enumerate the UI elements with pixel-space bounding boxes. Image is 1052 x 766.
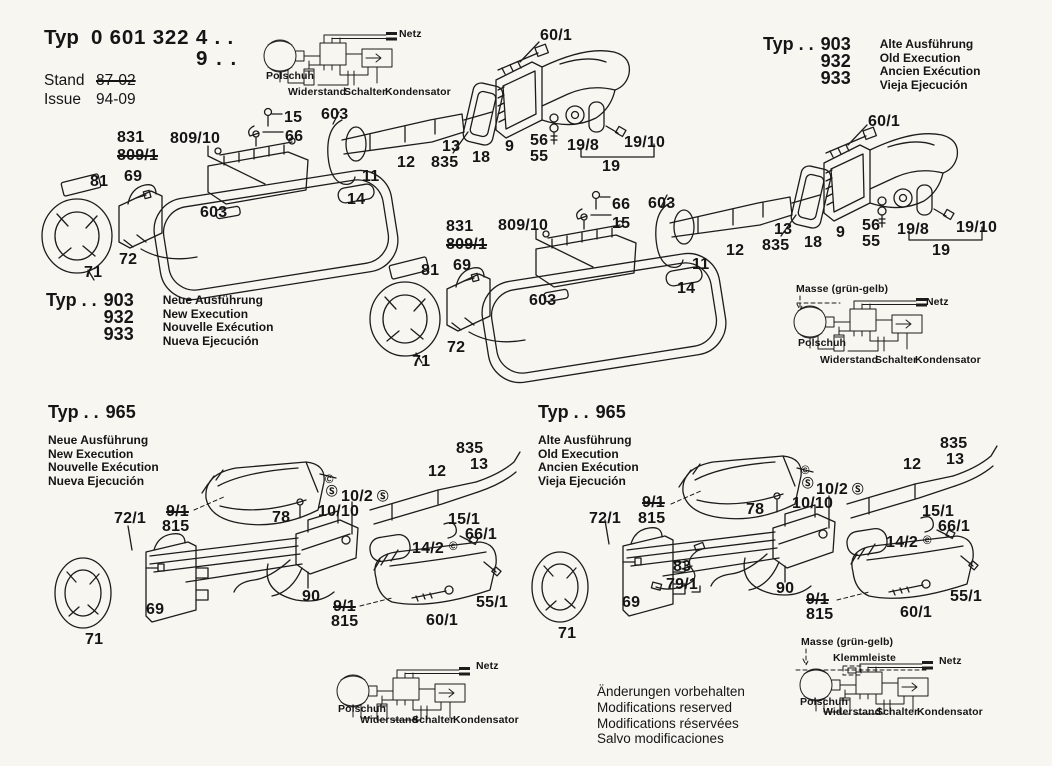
typ-number: 933 bbox=[46, 326, 134, 343]
typ-prefix: Typ . . bbox=[538, 402, 589, 422]
part-number-19-10: 19/10 bbox=[624, 135, 665, 151]
part-number-72: 72 bbox=[447, 340, 465, 356]
wiring-label-schalter: Schalter bbox=[876, 707, 918, 718]
footer-notes: Änderungen vorbehalten Modifications res… bbox=[597, 684, 745, 747]
type-block-965-new: Typ . .965 Neue Ausführung New Execution… bbox=[48, 404, 159, 488]
type-block-965-old: Typ . .965 Alte Ausführung Old Execution… bbox=[538, 404, 639, 488]
part-number-9: 9 bbox=[836, 225, 845, 241]
part-number-12: 12 bbox=[397, 155, 415, 171]
part-number-14: 14 bbox=[347, 192, 365, 208]
part-number-835: 835 bbox=[456, 441, 483, 457]
part-number-66-1: 66/1 bbox=[938, 519, 970, 535]
part-number-78: 78 bbox=[272, 510, 290, 526]
part-number-9-1: 9/1 bbox=[642, 495, 665, 511]
variant-lines: Neue Ausführung New Execution Nouvelle E… bbox=[48, 434, 159, 488]
part-number-815: 815 bbox=[162, 519, 189, 535]
variant-line: New Execution bbox=[48, 448, 159, 462]
part-number-13: 13 bbox=[946, 452, 964, 468]
circled-symbol-: Ⓢ bbox=[377, 492, 389, 504]
wiring-label-widerstand: Widerstand bbox=[820, 355, 878, 366]
part-number-69: 69 bbox=[124, 169, 142, 185]
variant-line: Vieja Ejecución bbox=[538, 475, 639, 489]
wiring-label-masse-grün-gelb: Masse (grün-gelb) bbox=[801, 637, 893, 648]
part-number-19-8: 19/8 bbox=[567, 138, 599, 154]
typ-number: 965 bbox=[106, 402, 136, 422]
variant-line: Neue Ausführung bbox=[48, 434, 159, 448]
typ-prefix: Typ . . bbox=[763, 34, 814, 54]
stand-label: Stand bbox=[44, 72, 96, 90]
variant-lines: Alte Ausführung Old Execution Ancien Exé… bbox=[538, 434, 639, 488]
part-number-66-1: 66/1 bbox=[465, 527, 497, 543]
wiring-label-polschuh: Polschuh bbox=[798, 338, 846, 349]
wiring-label-netz: Netz bbox=[926, 297, 949, 308]
part-number-72: 72 bbox=[119, 252, 137, 268]
part-number-18: 18 bbox=[804, 235, 822, 251]
typ-number: 933 bbox=[763, 70, 851, 87]
variant-line: Vieja Ejecución bbox=[880, 79, 981, 93]
stand-value: 87-02 bbox=[96, 72, 136, 89]
part-number-56: 56 bbox=[862, 218, 880, 234]
part-number-809-10: 809/10 bbox=[498, 218, 548, 234]
part-number-13: 13 bbox=[442, 139, 460, 155]
circled-symbol-: Ⓢ bbox=[852, 485, 864, 497]
part-number-14-2: 14/2 bbox=[412, 541, 444, 557]
typ-number-line2: 9 . . bbox=[196, 47, 238, 71]
part-number-69: 69 bbox=[146, 602, 164, 618]
part-number-71: 71 bbox=[558, 626, 576, 642]
part-number-831: 831 bbox=[117, 130, 144, 146]
variant-line: Alte Ausführung bbox=[538, 434, 639, 448]
stand-row: Stand87-02 bbox=[44, 72, 238, 90]
wiring-label-schalter: Schalter bbox=[875, 355, 917, 366]
wiring-label-polschuh: Polschuh bbox=[338, 704, 386, 715]
part-number-19-8: 19/8 bbox=[897, 222, 929, 238]
part-number-14: 14 bbox=[677, 281, 695, 297]
footer-note: Salvo modificaciones bbox=[597, 731, 745, 747]
part-number-55-1: 55/1 bbox=[950, 589, 982, 605]
part-number-835: 835 bbox=[762, 238, 789, 254]
part-number-71: 71 bbox=[85, 632, 103, 648]
part-number-72-1: 72/1 bbox=[114, 511, 146, 527]
part-number-60-1: 60/1 bbox=[900, 605, 932, 621]
part-number-55-1: 55/1 bbox=[476, 595, 508, 611]
part-number-81: 81 bbox=[421, 263, 439, 279]
type-numbers: Typ . .965 bbox=[48, 404, 159, 421]
part-number-12: 12 bbox=[726, 243, 744, 259]
wiring-label-widerstand: Widerstand bbox=[360, 715, 418, 726]
part-number-815: 815 bbox=[638, 511, 665, 527]
part-number-12: 12 bbox=[428, 464, 446, 480]
part-number-79-1: 79/1 bbox=[666, 577, 698, 593]
part-number-14-2: 14/2 bbox=[886, 535, 918, 551]
wiring-label-polschuh: Polschuh bbox=[266, 71, 314, 82]
wiring-label-schalter: Schalter bbox=[344, 87, 386, 98]
circled-symbol-: © bbox=[449, 542, 457, 554]
part-number-83: 83 bbox=[673, 559, 691, 575]
type-block-903-new: Typ . .903 932 933 Neue Ausführung New E… bbox=[46, 292, 273, 348]
bosch-parts-diagram-page: Typ0 601 322 4 . . 9 . . Stand87-02 Issu… bbox=[0, 0, 1052, 766]
variant-line: Ancien Exécution bbox=[880, 65, 981, 79]
wiring-label-kondensator: Kondensator bbox=[453, 715, 519, 726]
part-number-11: 11 bbox=[692, 257, 709, 273]
part-number-19-10: 19/10 bbox=[956, 220, 997, 236]
part-number-10-10: 10/10 bbox=[792, 496, 833, 512]
part-number-603: 603 bbox=[200, 205, 227, 221]
wiring-label-widerstand: Widerstand bbox=[823, 707, 881, 718]
typ-prefix: Typ . . bbox=[46, 290, 97, 310]
part-number-12: 12 bbox=[903, 457, 921, 473]
wiring-label-kondensator: Kondensator bbox=[917, 707, 983, 718]
part-number-78: 78 bbox=[746, 502, 764, 518]
circled-symbol-: Ⓢ bbox=[326, 487, 338, 499]
variant-line: Nouvelle Exécution bbox=[163, 321, 274, 335]
part-number-72-1: 72/1 bbox=[589, 511, 621, 527]
issue-row: Issue94-09 bbox=[44, 91, 238, 109]
part-number-66: 66 bbox=[285, 129, 303, 145]
part-number-66: 66 bbox=[612, 197, 630, 213]
part-number-81: 81 bbox=[90, 174, 108, 190]
variant-lines: Neue Ausführung New Execution Nouvelle E… bbox=[163, 294, 274, 348]
part-number-13: 13 bbox=[774, 222, 792, 238]
title-block: Typ0 601 322 4 . . 9 . . Stand87-02 Issu… bbox=[44, 26, 238, 109]
part-number-19: 19 bbox=[602, 159, 620, 175]
part-number-60-1: 60/1 bbox=[868, 114, 900, 130]
circled-symbol-: © bbox=[801, 466, 809, 478]
wiring-label-kondensator: Kondensator bbox=[385, 87, 451, 98]
part-number-56: 56 bbox=[530, 133, 548, 149]
typ-number: 965 bbox=[596, 402, 626, 422]
type-numbers: Typ . .965 bbox=[538, 404, 639, 421]
part-number-11: 11 bbox=[362, 169, 379, 185]
wiring-label-schalter: Schalter bbox=[412, 715, 454, 726]
typ-number: 0 601 322 4 . . bbox=[91, 26, 234, 49]
type-numbers: Typ . .903 932 933 bbox=[46, 292, 134, 343]
typ-prefix: Typ . . bbox=[48, 402, 99, 422]
wiring-label-widerstand: Widerstand bbox=[288, 87, 346, 98]
variant-line: Neue Ausführung bbox=[163, 294, 274, 308]
variant-line: Old Execution bbox=[538, 448, 639, 462]
circled-symbol-: Ⓢ bbox=[802, 479, 814, 491]
part-number-815: 815 bbox=[806, 607, 833, 623]
variant-line: Alte Ausführung bbox=[880, 38, 981, 52]
part-number-831: 831 bbox=[446, 219, 473, 235]
part-number-835: 835 bbox=[940, 436, 967, 452]
part-number-90: 90 bbox=[302, 589, 320, 605]
wiring-label-klemmleiste: Klemmleiste bbox=[833, 653, 896, 664]
part-number-603: 603 bbox=[529, 293, 556, 309]
wiring-label-netz: Netz bbox=[476, 661, 499, 672]
part-number-809-1: 809/1 bbox=[446, 237, 487, 253]
circled-symbol-: © bbox=[923, 536, 931, 548]
issue-label: Issue bbox=[44, 91, 96, 109]
wiring-label-netz: Netz bbox=[399, 29, 422, 40]
part-number-19: 19 bbox=[932, 243, 950, 259]
part-number-60-1: 60/1 bbox=[540, 28, 572, 44]
part-number-13: 13 bbox=[470, 457, 488, 473]
type-block-903-old: Typ . .903 932 933 Alte Ausführung Old E… bbox=[763, 36, 980, 92]
part-number-90: 90 bbox=[776, 581, 794, 597]
part-number-815: 815 bbox=[331, 614, 358, 630]
variant-line: Nueva Ejecución bbox=[163, 335, 274, 349]
part-number-603: 603 bbox=[321, 107, 348, 123]
part-number-69: 69 bbox=[453, 258, 471, 274]
footer-note: Modifications réservées bbox=[597, 716, 745, 732]
wiring-label-netz: Netz bbox=[939, 656, 962, 667]
variant-line: Nueva Ejecución bbox=[48, 475, 159, 489]
variant-lines: Alte Ausführung Old Execution Ancien Exé… bbox=[880, 38, 981, 92]
issue-value: 94-09 bbox=[96, 91, 136, 108]
variant-line: New Execution bbox=[163, 308, 274, 322]
part-number-809-1: 809/1 bbox=[117, 148, 158, 164]
part-number-15: 15 bbox=[284, 110, 302, 126]
part-number-55: 55 bbox=[862, 234, 880, 250]
variant-line: Old Execution bbox=[880, 52, 981, 66]
footer-note: Modifications reserved bbox=[597, 700, 745, 716]
part-number-809-10: 809/10 bbox=[170, 131, 220, 147]
part-number-71: 71 bbox=[84, 265, 102, 281]
footer-note: Änderungen vorbehalten bbox=[597, 684, 745, 700]
part-number-603: 603 bbox=[648, 196, 675, 212]
part-number-69: 69 bbox=[622, 595, 640, 611]
wiring-label-masse-grün-gelb: Masse (grün-gelb) bbox=[796, 284, 888, 295]
part-number-15: 15 bbox=[612, 216, 630, 232]
wiring-label-kondensator: Kondensator bbox=[915, 355, 981, 366]
typ-label: Typ bbox=[44, 26, 79, 49]
part-number-55: 55 bbox=[530, 149, 548, 165]
part-number-18: 18 bbox=[472, 150, 490, 166]
part-number-60-1: 60/1 bbox=[426, 613, 458, 629]
part-number-835: 835 bbox=[431, 155, 458, 171]
circled-symbol-: © bbox=[325, 475, 333, 487]
part-number-71: 71 bbox=[412, 354, 430, 370]
part-number-9: 9 bbox=[505, 139, 514, 155]
variant-line: Ancien Exécution bbox=[538, 461, 639, 475]
variant-line: Nouvelle Exécution bbox=[48, 461, 159, 475]
type-numbers: Typ . .903 932 933 bbox=[763, 36, 851, 87]
part-number-10-10: 10/10 bbox=[318, 504, 359, 520]
